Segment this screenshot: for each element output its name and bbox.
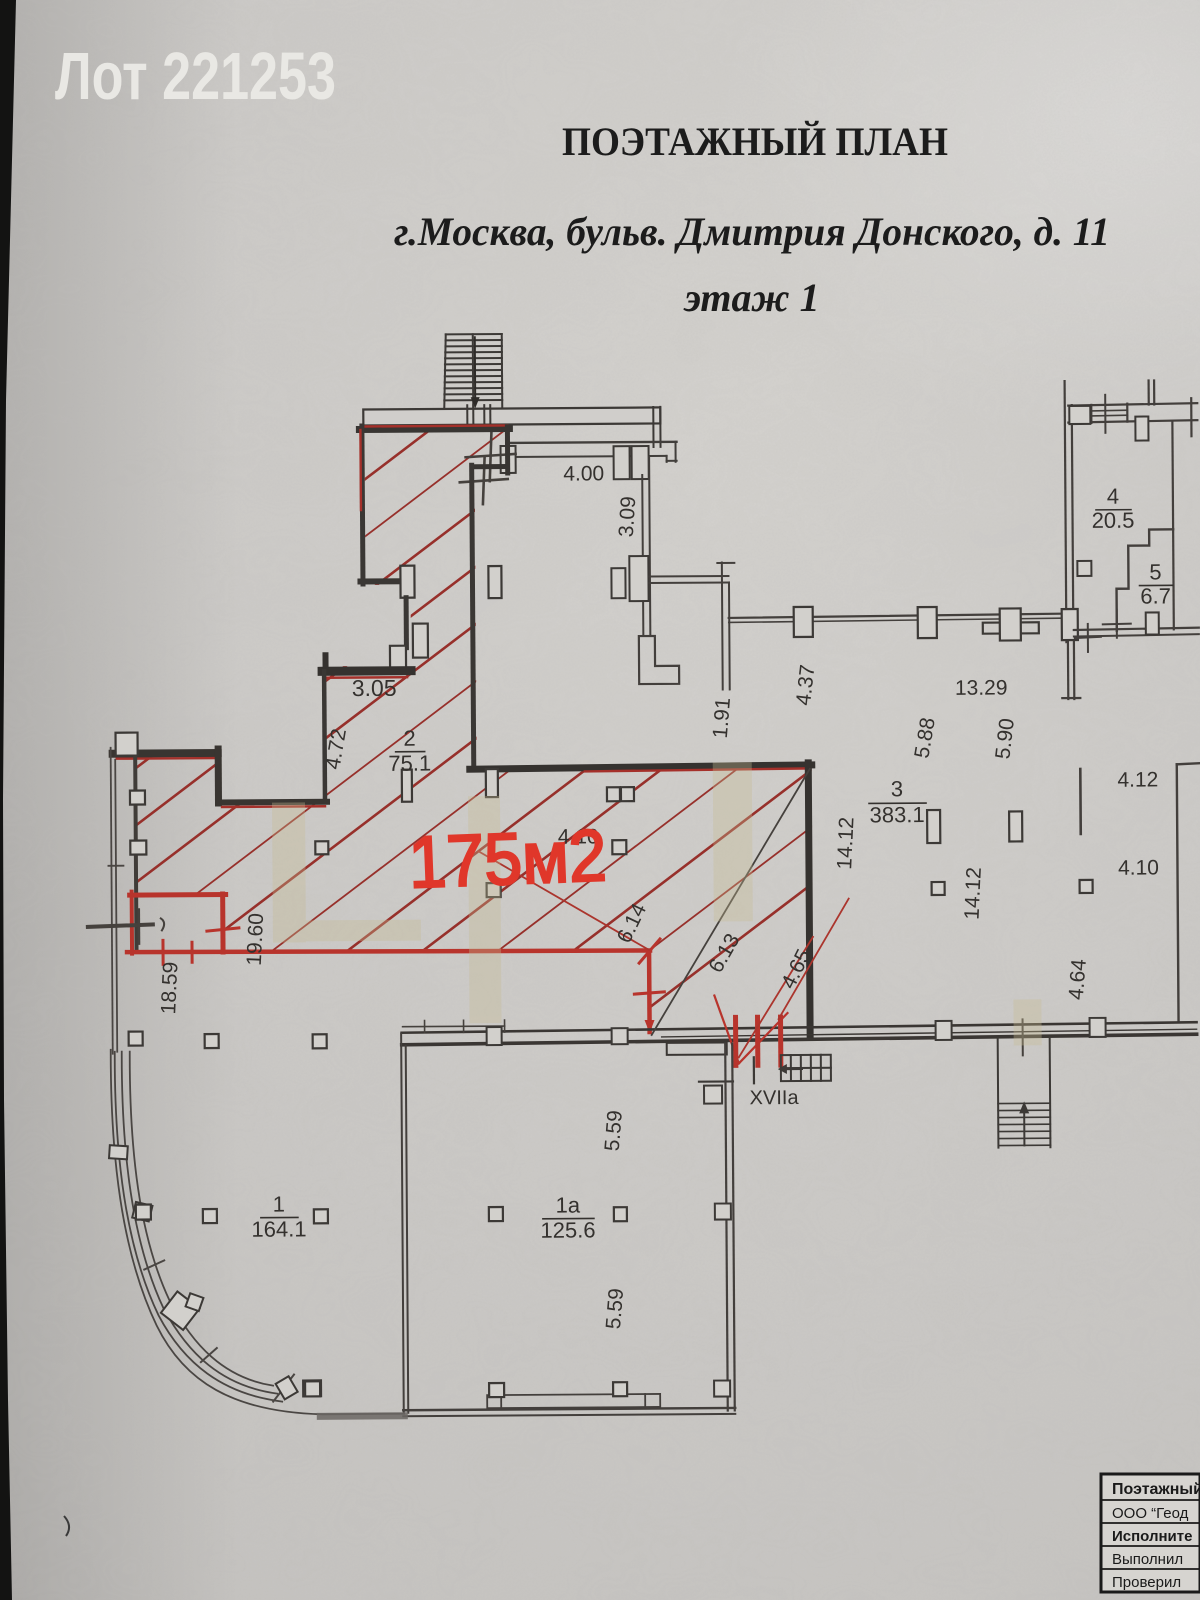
svg-text:ПОЭТАЖНЫЙ ПЛАН: ПОЭТАЖНЫЙ ПЛАН bbox=[562, 119, 948, 164]
svg-text:4: 4 bbox=[1107, 484, 1119, 509]
svg-text:1.91: 1.91 bbox=[709, 697, 735, 740]
svg-text:13.29: 13.29 bbox=[955, 677, 1008, 700]
svg-text:Проверил: Проверил bbox=[1112, 1574, 1181, 1591]
svg-text:ООО “Геод: ООО “Геод bbox=[1112, 1505, 1189, 1522]
svg-text:этаж 1: этаж 1 bbox=[682, 275, 819, 320]
svg-text:4.37: 4.37 bbox=[792, 663, 820, 706]
svg-text:2: 2 bbox=[403, 726, 415, 751]
svg-text:3.05: 3.05 bbox=[352, 675, 397, 701]
svg-text:5.59: 5.59 bbox=[601, 1109, 627, 1152]
svg-text:19.60: 19.60 bbox=[243, 913, 268, 967]
svg-text:175м2: 175м2 bbox=[407, 815, 608, 904]
svg-text:3.09: 3.09 bbox=[615, 496, 641, 538]
svg-text:1а: 1а bbox=[555, 1192, 580, 1217]
svg-text:4.12: 4.12 bbox=[1117, 768, 1158, 791]
svg-text:75.1: 75.1 bbox=[388, 751, 431, 776]
svg-text:18.59: 18.59 bbox=[157, 961, 182, 1015]
svg-text:4.10: 4.10 bbox=[1118, 856, 1159, 879]
svg-text:4.00: 4.00 bbox=[563, 462, 604, 485]
svg-text:6.7: 6.7 bbox=[1140, 583, 1171, 608]
svg-text:5.90: 5.90 bbox=[991, 717, 1019, 760]
svg-text:14.12: 14.12 bbox=[960, 867, 985, 921]
svg-text:383.1: 383.1 bbox=[869, 802, 924, 827]
svg-text:Поэтажный: Поэтажный bbox=[1112, 1481, 1200, 1498]
svg-text:20.5: 20.5 bbox=[1092, 508, 1135, 533]
svg-text:г.Москва, бульв. Дмитрия Донск: г.Москва, бульв. Дмитрия Донского, д. 11 bbox=[394, 209, 1110, 254]
svg-text:Лот 221253: Лот 221253 bbox=[55, 39, 336, 114]
svg-text:14.12: 14.12 bbox=[833, 817, 858, 871]
svg-text:164.1: 164.1 bbox=[251, 1216, 306, 1241]
svg-text:3: 3 bbox=[891, 776, 903, 801]
svg-text:4.64: 4.64 bbox=[1065, 958, 1091, 1001]
svg-text:5: 5 bbox=[1149, 559, 1161, 584]
svg-text:5.59: 5.59 bbox=[602, 1287, 628, 1330]
svg-text:Исполните: Исполните bbox=[1112, 1528, 1192, 1545]
svg-text:XVIIa: XVIIa bbox=[750, 1087, 800, 1109]
svg-text:Выполнил: Выполнил bbox=[1112, 1551, 1183, 1568]
svg-text:125.6: 125.6 bbox=[540, 1217, 595, 1242]
svg-text:1: 1 bbox=[273, 1192, 285, 1217]
